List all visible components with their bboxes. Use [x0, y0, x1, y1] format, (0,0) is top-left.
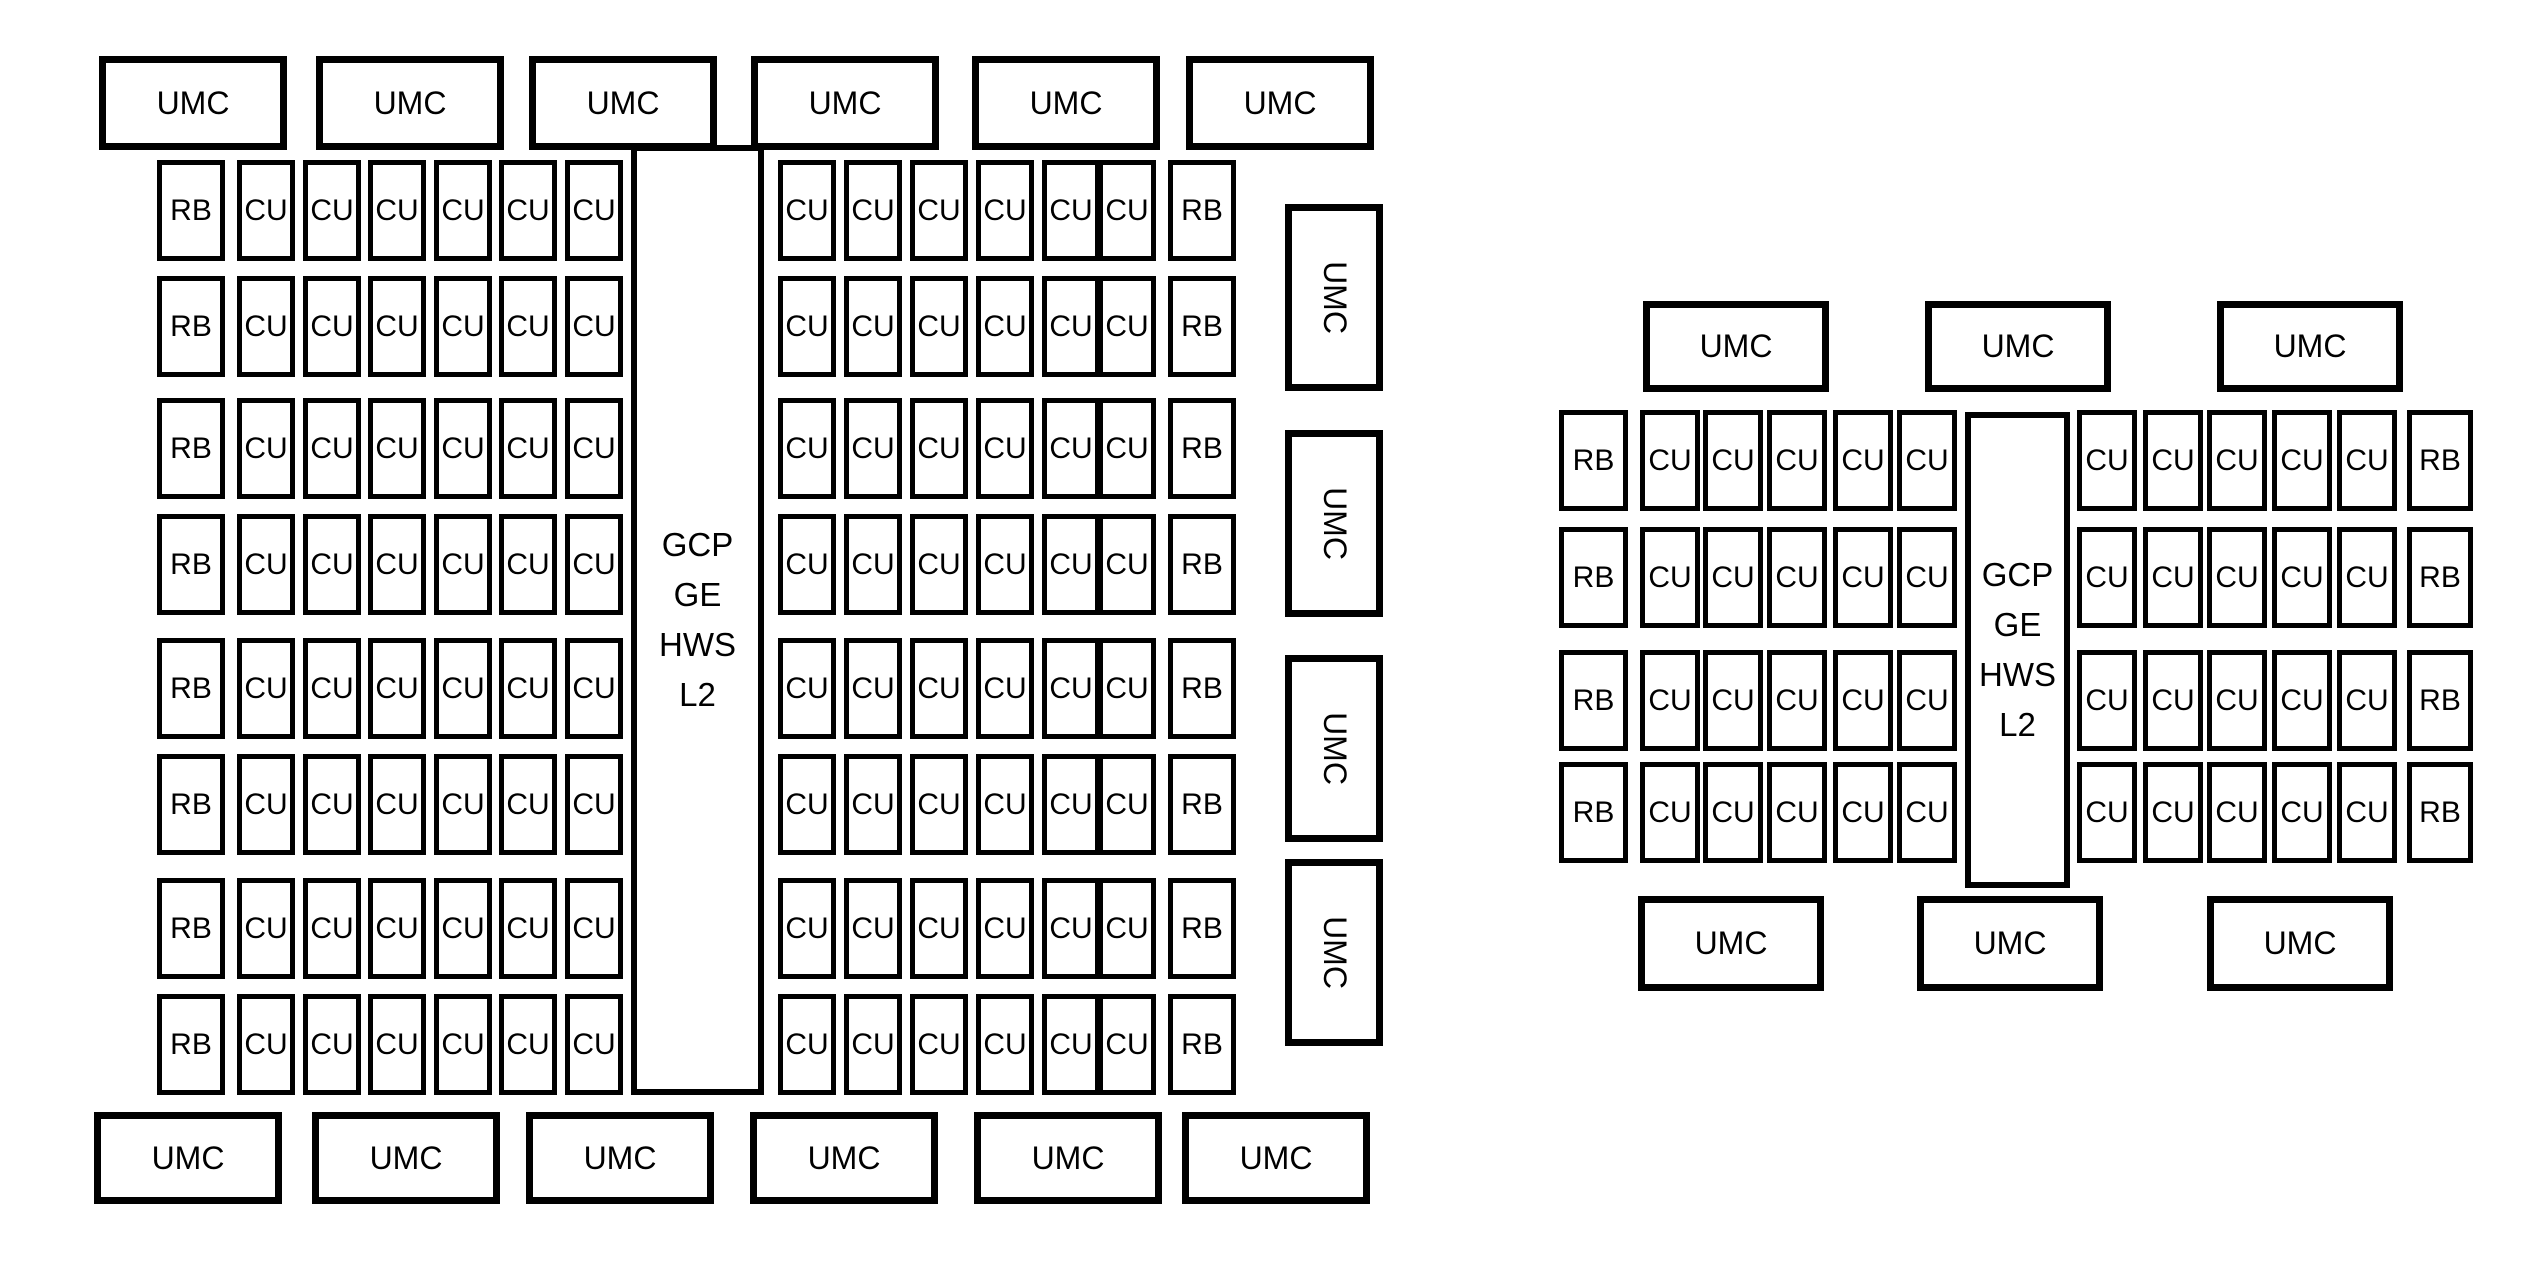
rb-block: RB: [1559, 410, 1628, 511]
cu-block: CU: [1897, 527, 1957, 628]
cu-block: CU: [1640, 527, 1700, 628]
rb-block: RB: [2407, 410, 2473, 511]
cu-block: CU: [1703, 527, 1763, 628]
cu-block: CU: [1703, 650, 1763, 751]
cu-block: CU: [2337, 762, 2397, 863]
cu-block: CU: [2337, 527, 2397, 628]
cu-block: CU: [2077, 410, 2137, 511]
cu-block: CU: [2143, 527, 2203, 628]
cu-block: CU: [1767, 527, 1827, 628]
cu-block: CU: [2207, 410, 2267, 511]
cu-block: CU: [2207, 650, 2267, 751]
rb-block: RB: [1559, 527, 1628, 628]
die-diagram-small-die: UMCUMCUMCUMCUMCUMCRBCUCUCUCUCUCUCUCUCUCU…: [0, 0, 2545, 1269]
center-label-line: GE: [1994, 600, 2042, 650]
center-label-line: L2: [1999, 700, 2036, 750]
rb-block: RB: [2407, 527, 2473, 628]
umc-block: UMC: [1638, 896, 1824, 991]
rb-block: RB: [1559, 650, 1628, 751]
cu-block: CU: [1703, 410, 1763, 511]
cu-block: CU: [1640, 650, 1700, 751]
cu-block: CU: [1767, 650, 1827, 751]
gpu-die-floorplan-canvas: UMCUMCUMCUMCUMCUMCUMCUMCUMCUMCUMCUMCUMCU…: [0, 0, 2545, 1269]
umc-block: UMC: [1643, 301, 1829, 392]
cu-block: CU: [1897, 762, 1957, 863]
umc-block: UMC: [1925, 301, 2111, 392]
cu-block: CU: [2337, 410, 2397, 511]
umc-block: UMC: [1917, 896, 2103, 991]
center-label-line: GCP: [1982, 550, 2054, 600]
cu-block: CU: [2207, 527, 2267, 628]
cu-block: CU: [2143, 650, 2203, 751]
cu-block: CU: [2077, 650, 2137, 751]
cu-block: CU: [2143, 410, 2203, 511]
cu-block: CU: [2207, 762, 2267, 863]
cu-block: CU: [2272, 410, 2332, 511]
cu-block: CU: [2272, 527, 2332, 628]
cu-block: CU: [1640, 762, 1700, 863]
cu-block: CU: [2077, 527, 2137, 628]
cu-block: CU: [1767, 410, 1827, 511]
cu-block: CU: [1897, 410, 1957, 511]
cu-block: CU: [2337, 650, 2397, 751]
cu-block: CU: [1833, 527, 1893, 628]
rb-block: RB: [1559, 762, 1628, 863]
rb-block: RB: [2407, 762, 2473, 863]
cu-block: CU: [1703, 762, 1763, 863]
cu-block: CU: [1767, 762, 1827, 863]
cu-block: CU: [2272, 762, 2332, 863]
cu-block: CU: [1833, 650, 1893, 751]
center-label-line: HWS: [1979, 650, 2056, 700]
cu-block: CU: [1897, 650, 1957, 751]
cu-block: CU: [2272, 650, 2332, 751]
rb-block: RB: [2407, 650, 2473, 751]
cu-block: CU: [2077, 762, 2137, 863]
umc-block: UMC: [2207, 896, 2393, 991]
center-block-gcp-ge-hws-l2: GCPGEHWSL2: [1965, 412, 2070, 888]
cu-block: CU: [1833, 410, 1893, 511]
umc-block: UMC: [2217, 301, 2403, 392]
cu-block: CU: [1833, 762, 1893, 863]
cu-block: CU: [2143, 762, 2203, 863]
cu-block: CU: [1640, 410, 1700, 511]
